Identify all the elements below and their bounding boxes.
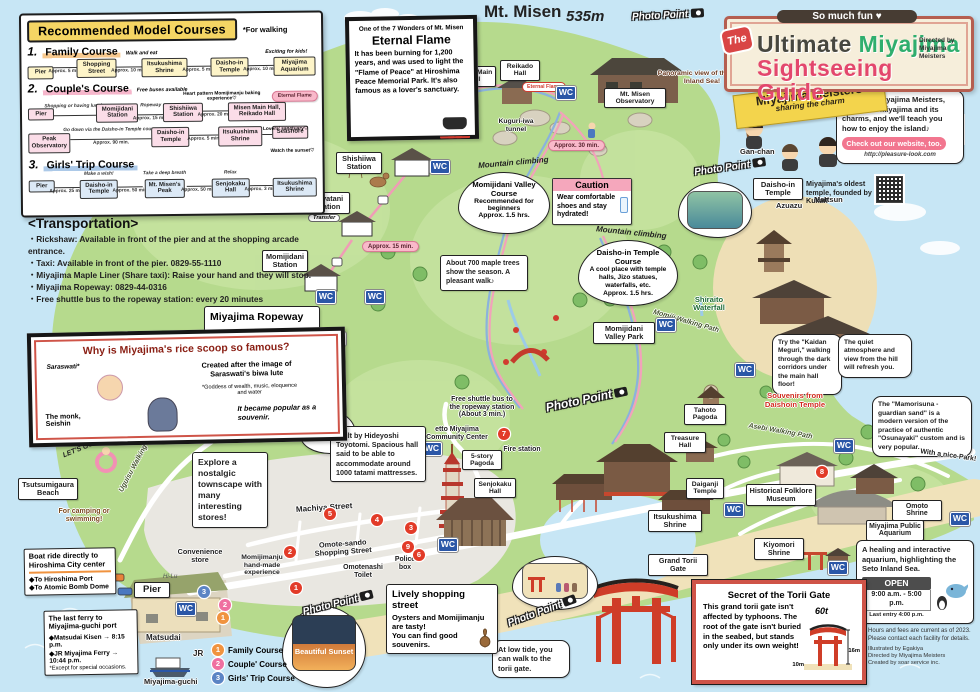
last-ferry-item: ◆Matsudai Kisen → 8:15 p.m.: [49, 632, 133, 648]
course-note: Watch the sunset♡: [271, 148, 315, 153]
quiet-bubble: The quiet atmosphere and view from the h…: [838, 334, 912, 378]
map-number-badge: 2: [284, 546, 296, 558]
momijidani-course-bubble: Momijidani Valley Course Recommended for…: [458, 172, 550, 234]
meister-name: Gan-chan: [740, 148, 775, 156]
omotenashi-label: Omotenashi Toilet: [336, 564, 390, 579]
website-url: http://pleasure-look.com: [842, 151, 958, 159]
course-stop: Itsukushima Shrine: [141, 58, 187, 78]
torii-diagram: [802, 618, 854, 672]
last-ferry-item: ◆JR Miyajima Ferry → 10:44 p.m.: [49, 648, 133, 664]
camera-icon: [359, 589, 374, 601]
dolphin-penguin-icon: [934, 577, 968, 611]
water-bottle-icon: [620, 197, 628, 213]
transportation-section: <Transportation> ・Rickshaw: Available in…: [28, 216, 328, 305]
credits-block: Hours and fees are current as of 2023. P…: [868, 628, 974, 666]
eternal-flame-box: One of the 7 Wonders of Mt. Misen Eterna…: [345, 15, 479, 141]
itsukushima-shrine-label: Itsukushima Shrine: [648, 510, 702, 532]
shiraito-waterfall-label: Shiraito Waterfall: [684, 296, 734, 313]
course-bubble-time: Approx. 1.5 hrs.: [586, 290, 670, 297]
transportation-item: ・Rickshaw: Available in front of the pie…: [28, 233, 328, 257]
omoto-shrine-label: Omoto Shrine: [892, 500, 942, 521]
map-number-badge: 7: [498, 428, 510, 440]
daishoin-desc: Miyajima's oldest temple, founded by Kuk…: [806, 180, 874, 206]
legend-badge: 1: [212, 644, 224, 656]
map-number-badge: 8: [816, 466, 828, 478]
camera-icon: [691, 8, 704, 18]
course-bubble-body: A cool place with temple halls, Jizo sta…: [586, 266, 670, 290]
map-number-badge: 4: [371, 514, 383, 526]
course-note: Exciting for kids!: [265, 49, 307, 55]
kuguri-iwa-label: Kuguri-iwa tunnel: [488, 118, 544, 133]
fire-station-label: Fire station: [500, 446, 544, 454]
senjokaku-label: Senjokaku Hall: [474, 478, 516, 498]
torii-secret-body: This grand torii gate isn't affected by …: [703, 602, 807, 651]
wc-icon: WC: [834, 439, 854, 453]
jr-label: JR: [193, 650, 203, 659]
course-note: Relax: [224, 170, 237, 177]
monk-illustration: [147, 397, 178, 432]
mini-figure: [572, 583, 577, 592]
open-hours: 9:00 a.m. - 5:00 p.m.: [862, 590, 931, 611]
courses-subtitle: *For walking: [243, 24, 288, 33]
aquarium-bubble: A healing and interactive aquarium, high…: [856, 540, 974, 624]
dog-name-note: Hi-Lu: [163, 574, 177, 580]
legend-label: Family Course: [228, 646, 283, 655]
course-number: 3.: [28, 157, 38, 171]
daiganji-label: Daiganji Temple: [686, 478, 724, 499]
valley-park-label: Momijidani Valley Park: [593, 322, 655, 344]
photo-preview-cloud: [678, 182, 752, 238]
boat-ride-box: Boat ride directly to Hiroshima City cen…: [24, 547, 117, 596]
convenience-store-label: Convenience store: [176, 548, 224, 564]
legend-badge: 3: [212, 672, 224, 684]
popular-note: It became popular as a souvenir.: [237, 402, 317, 422]
kaidan-bubble: Try the "Kaidan Meguri," walking through…: [772, 334, 842, 395]
qr-code: [876, 176, 903, 203]
miyajima-sightseeing-map: So much fun ♥ The Ultimate Miyajima Sigh…: [0, 0, 980, 692]
daishoin-temple-label: Daisho-in Temple: [753, 178, 803, 200]
wc-icon: WC: [438, 538, 458, 552]
caution-box: Caution Wear comfortable shoes and stay …: [552, 178, 632, 225]
five-story-pagoda-label: 5-story Pagoda: [462, 450, 502, 470]
sunset-photo: Beautiful Sunset: [292, 615, 356, 671]
transportation-item: ・Miyajima Ropeway: 0829-44-0316: [28, 281, 328, 293]
course-time: Approx. 90 min.: [93, 141, 129, 146]
wc-icon: WC: [950, 512, 970, 526]
course-bubble-title: Daisho-in Temple Course: [586, 248, 670, 266]
wc-icon: WC: [430, 160, 450, 174]
website-cta: Check out our website, too.: [842, 137, 946, 150]
transportation-item: ・Miyajima Maple Liner (Share taxi): Rais…: [28, 269, 328, 281]
transportation-title: <Transportation>: [28, 216, 328, 231]
time-pill: Approx. 30 min.: [548, 140, 605, 151]
transportation-item: ・Taxi: Available in front of the pier. 0…: [28, 257, 328, 269]
model-courses-panel: Recommended Model Courses *For walking 1…: [19, 10, 325, 217]
course-number: 1.: [27, 44, 37, 58]
rice-scoop-box: Why is Miyajima's rice scoop so famous? …: [27, 327, 347, 448]
course-bubble-time: Approx. 1.5 hrs.: [465, 212, 543, 219]
last-ferry-title: The last ferry to Miyajima-guchi port: [49, 613, 133, 631]
course-note: Lovers' sanctuary♡: [263, 126, 308, 131]
miyajima-guchi-label: Miyajima-guchi: [144, 678, 197, 686]
transportation-item: ・Free shuttle bus to the ropeway station…: [28, 293, 328, 305]
mini-figure: [556, 583, 561, 592]
camera-icon: [752, 157, 766, 168]
course-note: Go down via the Daisho-in Temple course: [63, 127, 158, 134]
mini-torii-pillar: [531, 578, 534, 592]
tsutsumigaura-label: Tsutsumigaura Beach: [18, 478, 78, 500]
torii-scene-photo: [522, 563, 588, 599]
open-header: OPEN: [862, 577, 931, 590]
saraswati-illustration: [97, 374, 124, 401]
last-entry: Last entry 4:00 p.m.: [862, 612, 931, 619]
course-name: Girls' Trip Course: [43, 158, 137, 171]
torii-depth: 10m: [792, 662, 804, 668]
shopping-street-box: Lively shopping street Oysters and Momij…: [386, 584, 498, 654]
boat-ride-item: ◆To Atomic Bomb Dome: [29, 582, 111, 591]
wc-icon: WC: [724, 503, 744, 517]
courses-title: Recommended Model Courses: [27, 18, 237, 42]
course-number: 2.: [28, 81, 38, 95]
course-note: Heart pattern Momijimanju baking experie…: [174, 91, 270, 103]
title-line2: Sightseeing Guide: [757, 57, 965, 105]
course-stop: Itsukushima Shrine: [273, 177, 317, 197]
shishiiwa-station-label: Shishiiwa Station: [336, 152, 382, 174]
caution-body: Wear comfortable shoes and stay hydrated…: [557, 194, 615, 218]
torii-secret-box: Secret of the Torii Gate This grand tori…: [692, 580, 866, 684]
title-ultimate: Ultimate: [757, 31, 852, 57]
map-number-badge: 5: [324, 508, 336, 520]
course-girls: 3.Girls' Trip Course Pier Approx. 25 min…: [28, 154, 316, 199]
course-stop: Itsukushima Shrine: [218, 126, 262, 146]
observatory-label: Mt. Misen Observatory: [604, 88, 666, 108]
tahoto-pagoda-label: Tahoto Pagoda: [684, 404, 726, 425]
legend-label: Girls' Trip Course: [228, 674, 295, 683]
wc-icon: WC: [735, 363, 755, 377]
folklore-museum-label: Historical Folklore Museum: [746, 484, 816, 506]
reikado-hall-label: Reikado Hall: [500, 60, 540, 81]
last-ferry-note: *Except for special occasions.: [49, 664, 133, 671]
the-badge: The: [721, 26, 753, 53]
daishoin-course-bubble: Daisho-in Temple Course A cool place wit…: [578, 240, 678, 306]
community-center-label: etto Miyajima Community Center: [424, 426, 490, 441]
course-stop: Misen Main Hall, Reikado Hall: [228, 102, 286, 122]
aquarium-label: Miyajima Public Aquarium: [866, 520, 924, 541]
map-number-badge: 9: [402, 541, 414, 553]
course-time: Approx. 5 min.: [187, 137, 220, 142]
course-stop: Daisho-in Temple: [152, 127, 190, 147]
legend-badge: 2: [212, 658, 224, 670]
treasure-hall-label: Treasure Hall: [664, 432, 706, 453]
ropeway-title: Miyajima Ropeway: [210, 311, 314, 323]
course-stop: Peak Observatory: [28, 133, 70, 153]
flame-pot-icon: [443, 117, 467, 129]
goddess-note: *Goddess of wealth, music, eloquence and…: [197, 383, 302, 397]
so-much-fun-ribbon: So much fun ♥: [777, 10, 917, 23]
meister-name: Azuazu: [776, 202, 802, 210]
kiyomori-label: Kiyomori Shrine: [754, 538, 804, 560]
maple-note-box: About 700 maple trees show the season. A…: [440, 255, 528, 291]
course-family: 1.Family CourseWalk and eatExciting for …: [27, 41, 315, 79]
course-note: Make a wish!: [84, 171, 114, 178]
mini-torii-lintel: [528, 577, 545, 580]
waterfall-photo: [687, 191, 743, 229]
camera-icon: [614, 386, 629, 398]
map-number-badge: 3: [405, 522, 417, 534]
gourd-icon: [477, 627, 493, 649]
torii-weight: 60t: [815, 606, 828, 616]
mini-figure: [564, 583, 569, 592]
course-name: Family Course: [42, 46, 120, 59]
eternal-flame-title: Eternal Flame: [354, 32, 468, 48]
eternal-flame-note: Eternal Flame: [272, 90, 318, 101]
shuttle-note: Free shuttle bus to the ropeway station …: [446, 396, 518, 419]
credit-line: Illustrated by Egakiya: [868, 646, 974, 652]
pier-label: Pier: [134, 582, 170, 598]
time-pill: Approx. 15 min.: [362, 241, 419, 252]
course-marker: 3: [198, 586, 210, 598]
torii-height: 16m: [848, 648, 860, 654]
caution-title: Caution: [553, 179, 631, 191]
nostalgic-box: Explore a nostalgic townscape with many …: [192, 452, 268, 528]
matsudai-label: Matsudai: [146, 634, 181, 643]
credit-line: Hours and fees are current as of 2023. P…: [868, 628, 974, 643]
course-name: Couple's Course: [43, 82, 132, 95]
wc-icon: WC: [176, 602, 196, 616]
course-note: Take a deep breath: [143, 170, 186, 177]
course-marker: 1: [217, 612, 229, 624]
grand-torii-label: Grand Torii Gate: [648, 554, 708, 576]
camping-note: For camping or swimming!: [52, 508, 116, 524]
monk-label: The monk, Seishin: [46, 413, 88, 428]
course-note: Ropeway: [140, 103, 161, 109]
course-note: Walk and eat: [126, 50, 158, 56]
souvenirs-label: Souvenirs from Daishoin Temple: [756, 392, 834, 409]
rice-scoop-title: Why is Miyajima's rice scoop so famous?: [42, 340, 330, 358]
wc-icon: WC: [556, 86, 576, 100]
wc-icon: WC: [828, 561, 848, 575]
rice-scoop-created: Created after the image of Saraswati's b…: [186, 358, 306, 379]
momijimanju-label: Momijimanju hand-made experience: [236, 554, 288, 577]
title-banner: So much fun ♥ The Ultimate Miyajima Sigh…: [724, 16, 974, 92]
legend-label: Couple' Course: [228, 660, 287, 669]
course-legend: 1Family Course 2Couple' Course 3Girls' T…: [212, 644, 295, 684]
course-stop: Mt. Misen's Peak: [145, 178, 185, 198]
boat-ride-title: Boat ride directly to Hiroshima City cen…: [29, 551, 111, 569]
shopping-title: Lively shopping street: [392, 589, 492, 611]
eternal-flame-body: It has been burning for 1,200 years, and…: [354, 47, 469, 96]
low-tide-bubble: At low tide, you can walk to the torii g…: [492, 640, 570, 678]
wc-icon: WC: [656, 318, 676, 332]
aquarium-desc: A healing and interactive aquarium, high…: [862, 545, 956, 573]
directed-by: Directed by Miyajima Meisters: [919, 37, 967, 60]
course-stop: Miyajima Aquarium: [273, 56, 315, 76]
torii-secret-title: Secret of the Torii Gate: [703, 589, 855, 600]
map-number-badge: 1: [290, 582, 302, 594]
wc-icon: WC: [365, 290, 385, 304]
saraswati-label: Saraswati*: [46, 363, 79, 371]
credit-line: Created by soar service inc.: [868, 660, 974, 666]
course-couple: 2.Couple's CourseFree buses available He…: [28, 78, 317, 153]
course-marker: 2: [219, 599, 231, 611]
sunset-caption: Beautiful Sunset: [295, 647, 353, 656]
mt-misen-elevation: 535m: [566, 8, 604, 25]
map-number-badge: 6: [413, 549, 425, 561]
mini-torii-pillar: [539, 578, 542, 592]
credit-line: Directed by Miyajima Meisters: [868, 653, 974, 659]
course-bubble-title: Momijidani Valley Course: [465, 180, 543, 198]
hiker-illustration: [588, 123, 596, 139]
mt-misen-label: Mt. Misen: [484, 4, 561, 20]
last-ferry-box: The last ferry to Miyajima-guchi port ◆M…: [43, 609, 138, 675]
course-bubble-body: Recommended for beginners: [465, 198, 543, 212]
